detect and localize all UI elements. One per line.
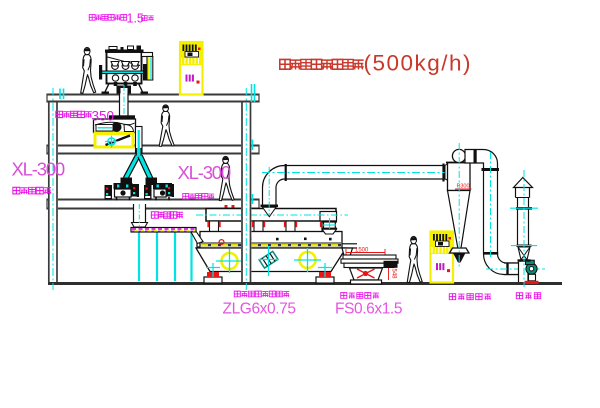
svg-text:350: 350 [92,109,115,124]
svg-text:548: 548 [391,269,397,280]
svg-text:ZLG6x0.75: ZLG6x0.75 [223,301,296,318]
svg-text:(500kg/h): (500kg/h) [364,51,473,76]
svg-text:1500: 1500 [355,248,369,254]
svg-text:XL-300: XL-300 [12,159,65,180]
svg-text:FS0.6x1.5: FS0.6x1.5 [335,301,402,318]
svg-text:XL-300: XL-300 [178,162,231,183]
